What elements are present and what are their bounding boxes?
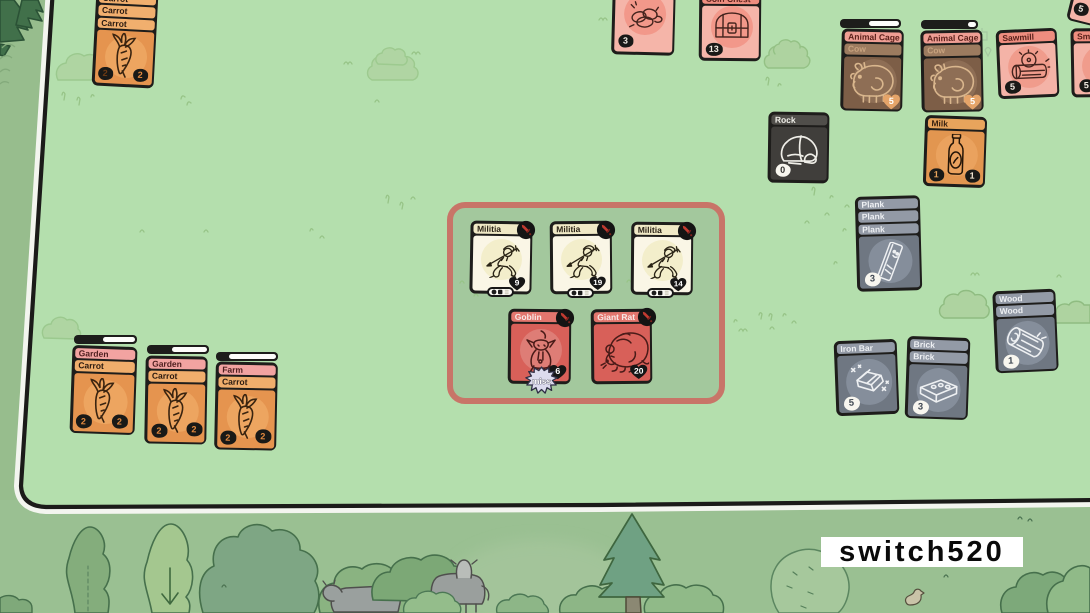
svg-text:9: 9 [514, 279, 519, 288]
svg-text:miss: miss [532, 376, 552, 386]
svg-text:14: 14 [673, 280, 683, 289]
svg-text:5: 5 [969, 96, 974, 106]
svg-text:20: 20 [633, 367, 643, 376]
svg-text:5: 5 [888, 95, 893, 105]
svg-text:19: 19 [593, 278, 603, 287]
